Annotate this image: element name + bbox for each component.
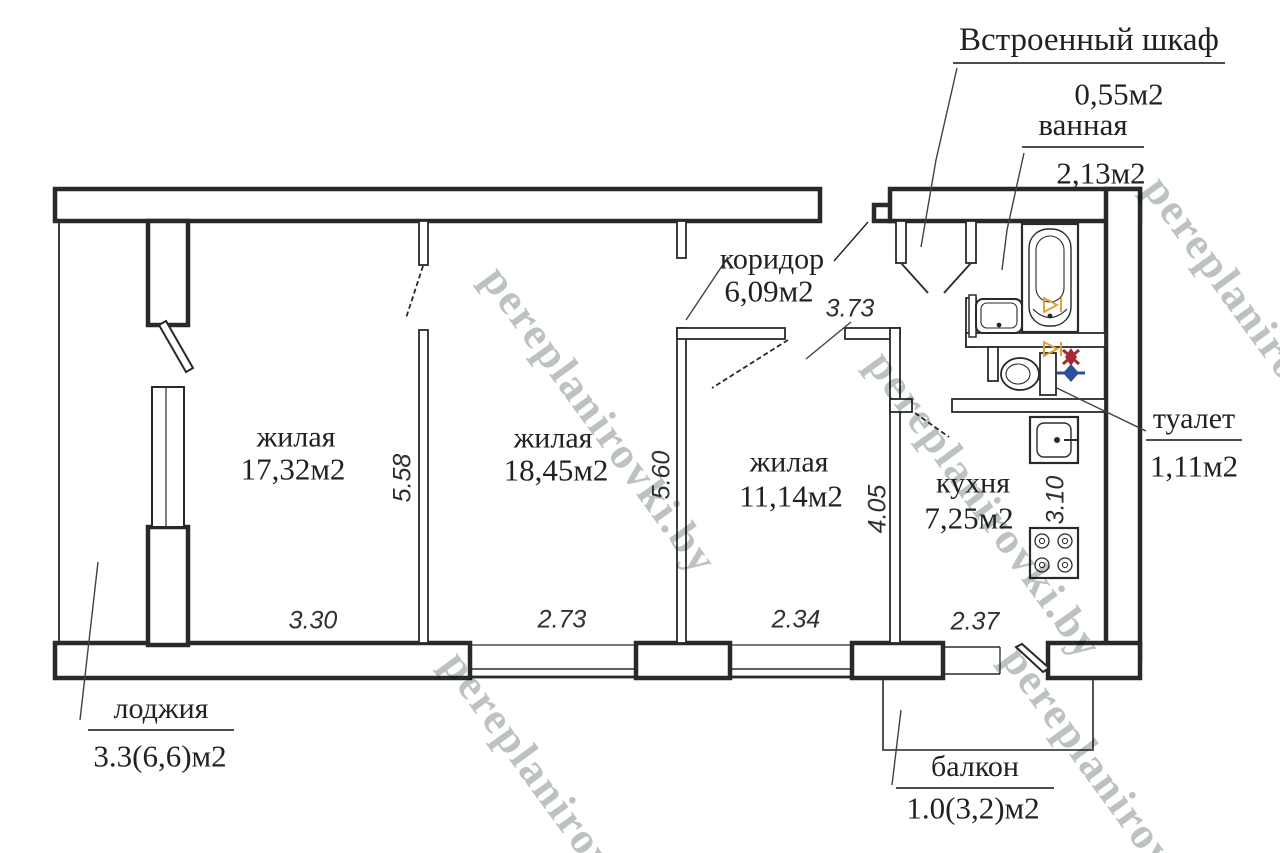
kitchen-name: кухня (936, 467, 1010, 499)
exterior-walls (55, 189, 1140, 678)
partition-room2-room3-stub (677, 221, 686, 258)
partition-room1-room2 (419, 330, 428, 643)
corridor-name: коридор (720, 243, 824, 275)
stove-icon (1030, 528, 1078, 578)
dim-room1-depth: 5.58 (389, 454, 418, 503)
dim-corridor-width: 3.73 (826, 295, 875, 324)
loggia-wall-upper (148, 221, 188, 325)
dim-room2-depth: 5.60 (648, 451, 677, 500)
loggia-wall-lower (148, 527, 188, 645)
hot-water-riser-icon (1063, 348, 1079, 366)
top-wall-left (55, 189, 820, 221)
closet-right-jamb (966, 221, 976, 263)
kitchen-door-leaf (915, 413, 949, 437)
dim-room3-depth: 4.05 (864, 485, 893, 534)
balcony-outline (883, 680, 1093, 750)
room1-room2-door-leaf (406, 266, 423, 318)
partition-room1-room2-stub (419, 221, 428, 265)
room3-door-leaf (712, 340, 788, 388)
dim-kitchen-width: 2.37 (951, 608, 1000, 637)
balcony-door-sidelight (943, 647, 1000, 674)
balcony-door-leaf (1016, 644, 1049, 672)
bathroom-callout-label: ванная (1022, 108, 1144, 148)
toilet-callout-label: туалет (1146, 402, 1242, 441)
corridor-room3-wall (677, 328, 785, 339)
closet-door-leaf-right (944, 263, 971, 293)
bathtub-icon (1022, 224, 1078, 332)
floor-plan-page: pereplanirovki.by pereplanirovki.by pere… (0, 0, 1280, 853)
right-wall (1106, 189, 1140, 659)
window-room2 (470, 645, 636, 677)
kitchen-area: 7,25м2 (924, 503, 1013, 536)
window-room3 (730, 645, 852, 677)
room3-area: 11,14м2 (739, 481, 843, 514)
partition-room2-room3 (677, 328, 686, 643)
cold-water-riser-icon (1057, 364, 1085, 382)
balcony-callout-area: 1.0(3,2)м2 (906, 793, 1039, 826)
bottom-wall-pier-b (852, 643, 943, 678)
toilet-callout-area: 1,11м2 (1150, 451, 1238, 484)
washbasin-icon (969, 295, 1022, 337)
loggia-door-leaf (159, 321, 193, 372)
loggia-callout-area: 3.3(6,6)м2 (93, 741, 226, 774)
dim-kitchen-depth: 3.10 (1042, 476, 1071, 525)
room1-name: жилая (257, 421, 336, 453)
bathroom-callout-area: 2,13м2 (1056, 158, 1145, 191)
corridor-area: 6,09м2 (724, 276, 813, 309)
bathroom-toilet-wall (966, 333, 1105, 347)
dim-room1-width: 3.30 (289, 607, 338, 636)
corridor-dim-leader (806, 322, 851, 359)
closet-callout-label: Встроенный шкаф (953, 22, 1225, 64)
dim-room2-width: 2.73 (538, 606, 587, 635)
room3-name: жилая (750, 446, 829, 478)
closet-left-jamb (896, 221, 906, 263)
bottom-wall-left (55, 643, 470, 678)
room1-area: 17,32м2 (241, 454, 346, 487)
balcony-callout-label: балкон (896, 750, 1054, 789)
room2-area: 18,45м2 (504, 455, 609, 488)
loggia-callout-label: лоджия (88, 692, 234, 731)
room2-name: жилая (514, 422, 593, 454)
bottom-wall-pier-a (636, 643, 730, 678)
closet-door-leaf-left (901, 263, 928, 293)
entry-door-leaf (834, 222, 868, 261)
kitchen-sink-icon (1030, 417, 1078, 463)
dim-room3-width: 2.34 (772, 606, 821, 635)
bottom-wall-pier-c (1048, 643, 1140, 678)
kitchen-door-jamb (890, 399, 912, 412)
toilet-left-wall (988, 347, 998, 381)
loggia-window (152, 387, 184, 527)
toilet-bowl-icon (1001, 353, 1056, 395)
